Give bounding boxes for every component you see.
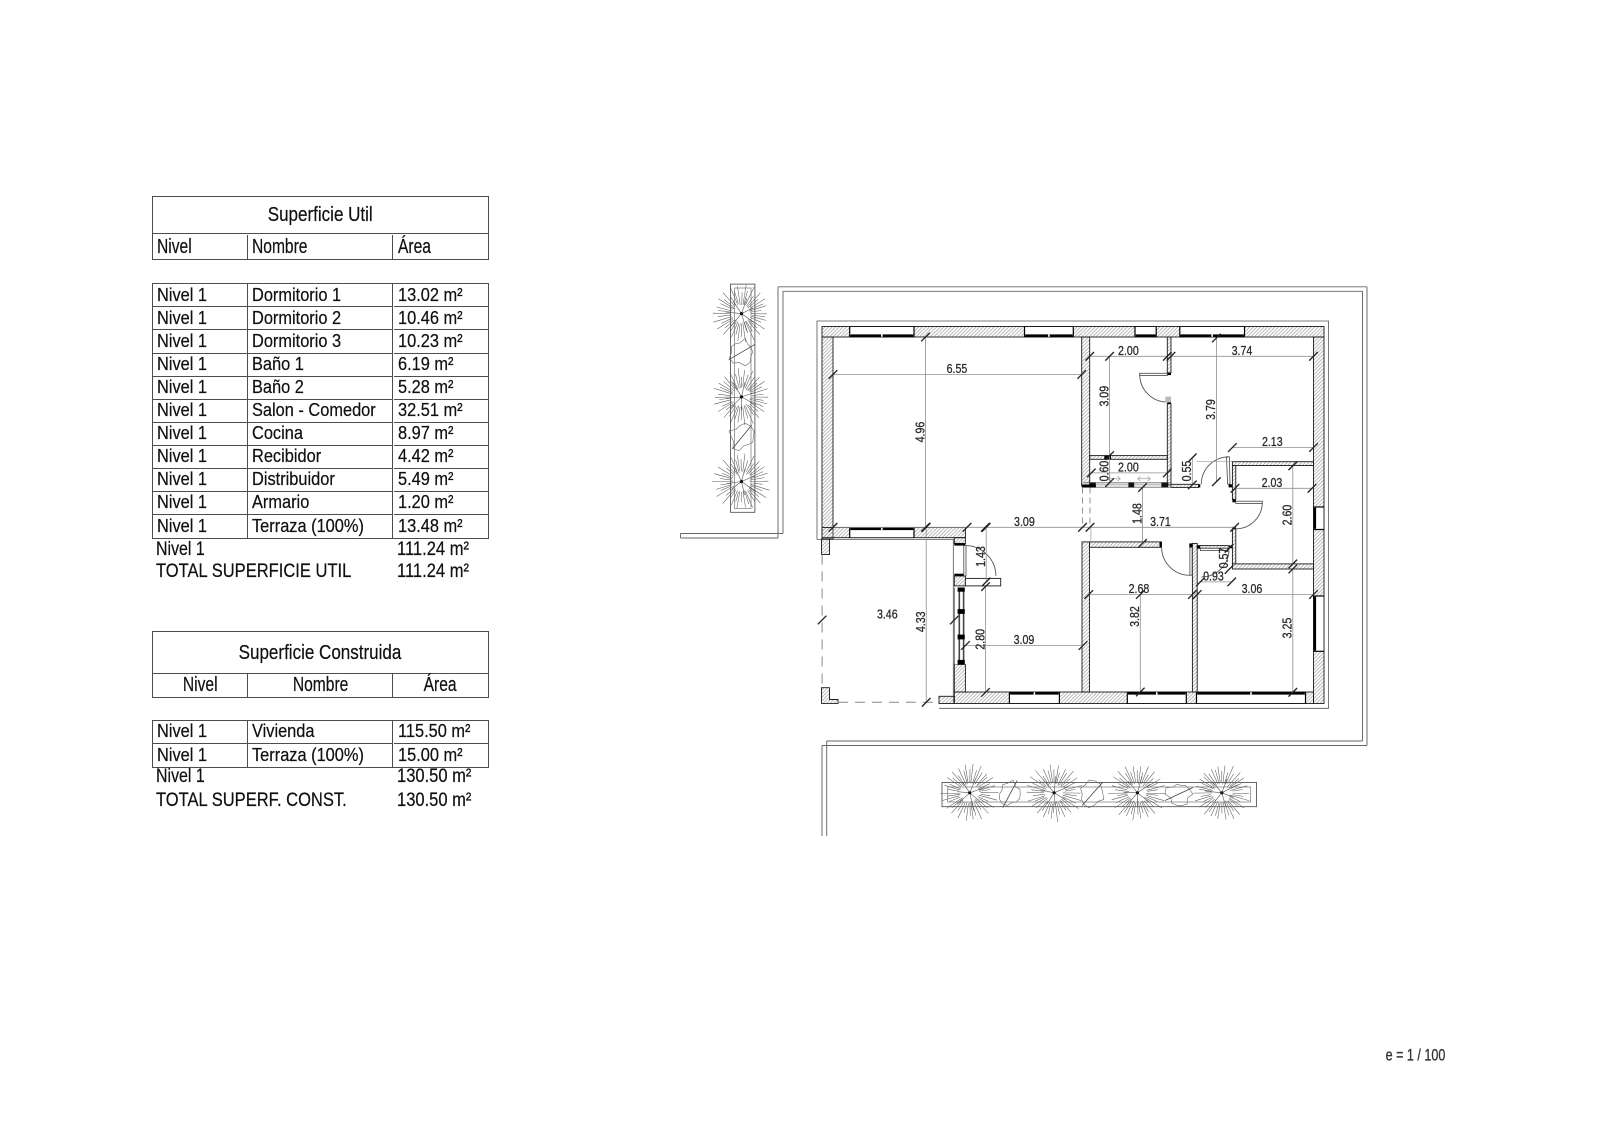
svg-text:6.55: 6.55 — [947, 361, 968, 376]
svg-text:0.55: 0.55 — [1179, 461, 1194, 482]
svg-text:3.09: 3.09 — [1014, 514, 1035, 529]
svg-text:1.43: 1.43 — [973, 546, 988, 567]
svg-text:3.71: 3.71 — [1150, 514, 1171, 529]
svg-text:0.57: 0.57 — [1216, 548, 1231, 569]
svg-text:2.80: 2.80 — [972, 629, 987, 650]
svg-text:3.82: 3.82 — [1127, 606, 1142, 627]
svg-text:3.09: 3.09 — [1014, 632, 1035, 647]
svg-text:0.60: 0.60 — [1096, 461, 1111, 482]
svg-text:2.00: 2.00 — [1118, 460, 1139, 475]
svg-text:3.46: 3.46 — [877, 607, 898, 622]
svg-text:3.79: 3.79 — [1203, 399, 1218, 420]
svg-text:e = 1 / 100: e = 1 / 100 — [1386, 1047, 1446, 1065]
svg-text:2.68: 2.68 — [1129, 581, 1150, 596]
svg-text:3.25: 3.25 — [1280, 618, 1295, 639]
svg-text:2.60: 2.60 — [1280, 505, 1295, 526]
svg-text:3.09: 3.09 — [1096, 386, 1111, 407]
svg-text:2.00: 2.00 — [1118, 343, 1139, 358]
svg-text:1.48: 1.48 — [1129, 503, 1144, 524]
svg-text:4.33: 4.33 — [913, 611, 928, 632]
svg-text:3.06: 3.06 — [1242, 581, 1263, 596]
svg-text:3.74: 3.74 — [1232, 343, 1253, 358]
svg-text:0.93: 0.93 — [1203, 569, 1224, 584]
svg-text:4.96: 4.96 — [912, 422, 927, 443]
svg-text:2.13: 2.13 — [1262, 434, 1283, 449]
svg-text:2.03: 2.03 — [1262, 475, 1283, 490]
